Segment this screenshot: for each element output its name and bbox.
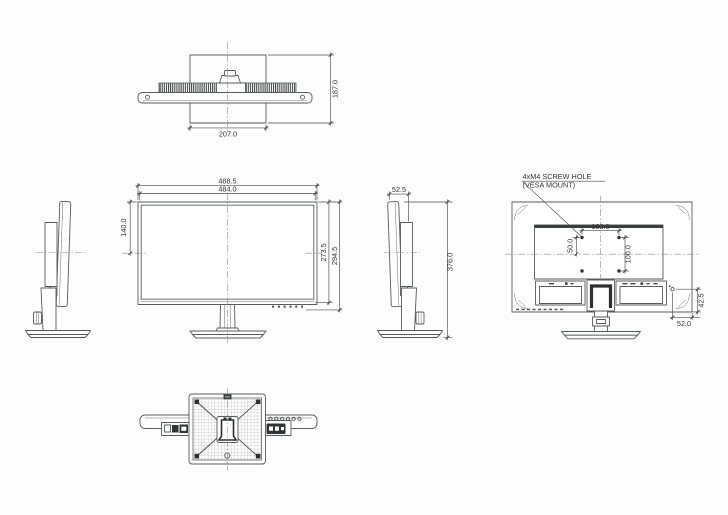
ac-inlet-slot [269, 427, 273, 431]
stand-base-foot [28, 335, 88, 338]
mount-clip [229, 418, 232, 421]
thumb-screw [34, 312, 42, 324]
vesa-plate [535, 225, 664, 279]
rear-housing [401, 223, 413, 287]
dim-hole-to-side: 52.0 [677, 319, 691, 328]
mount-clip [224, 418, 227, 421]
dim-front-total-height: 294.5 [330, 247, 339, 265]
stand-hinge [593, 317, 610, 326]
hinge-cover [217, 83, 246, 93]
dim-top-base-width: 207.0 [219, 130, 237, 139]
rear-view: 4xM4 SCREW HOLE (VESA MOUNT) 100.0 100.0… [505, 172, 706, 339]
stand-column [402, 288, 417, 331]
dim-center-to-hole: 50.0 [565, 239, 574, 253]
dim-top-depth: 187.0 [331, 80, 340, 98]
dim-side-depth: 52.5 [392, 185, 406, 194]
front-view: 488.5 484.0 140.0 273.5 294.5 [119, 177, 342, 345]
ac-inlet-slot [275, 427, 279, 431]
dim-front-screen-height: 273.5 [319, 243, 328, 261]
stand-base [26, 331, 91, 335]
drawing-canvas: 207.0 187.0 488.5 484.0 140.0 [0, 0, 728, 515]
dim-front-top-to-center: 140.0 [119, 218, 128, 236]
left-connector-panel [536, 281, 586, 305]
drawing-page: 207.0 187.0 488.5 484.0 140.0 [0, 0, 728, 515]
dim-vesa-height: 100.0 [624, 245, 633, 263]
rear-housing [45, 223, 57, 287]
hinge-knob [225, 71, 236, 77]
screw-dot [669, 285, 671, 287]
bottom-vent-dashes [516, 309, 563, 311]
dim-vesa-width: 100.0 [591, 222, 609, 231]
thumb-screw [416, 312, 424, 324]
stand-column [41, 288, 56, 331]
monitor-top-outline [138, 93, 312, 104]
stand-base-foot [193, 335, 264, 339]
stand-base [562, 332, 641, 336]
hdmi-port [172, 425, 179, 433]
left-side-view [26, 201, 91, 337]
dim-front-screen-width: 484.0 [218, 184, 236, 193]
vga-port-slot [181, 427, 186, 431]
dim-hole-to-bottom: 42.5 [697, 293, 706, 307]
right-side-view: 52.5 376.0 [378, 185, 455, 340]
control-buttons [272, 306, 303, 308]
top-view: 207.0 187.0 [138, 42, 340, 139]
dimension-lines [127, 199, 137, 255]
bottom-view [140, 388, 317, 472]
vesa-callout-line2: (VESA MOUNT) [523, 180, 576, 189]
dim-side-total-height: 376.0 [446, 253, 455, 271]
stand-base [378, 331, 443, 335]
panel-profile [56, 201, 71, 306]
stand-base [190, 331, 266, 335]
hinge-bump [220, 76, 241, 84]
ac-inlet-slot [281, 427, 284, 430]
stand-base-foot [565, 335, 638, 339]
stand-base-foot [380, 335, 440, 338]
